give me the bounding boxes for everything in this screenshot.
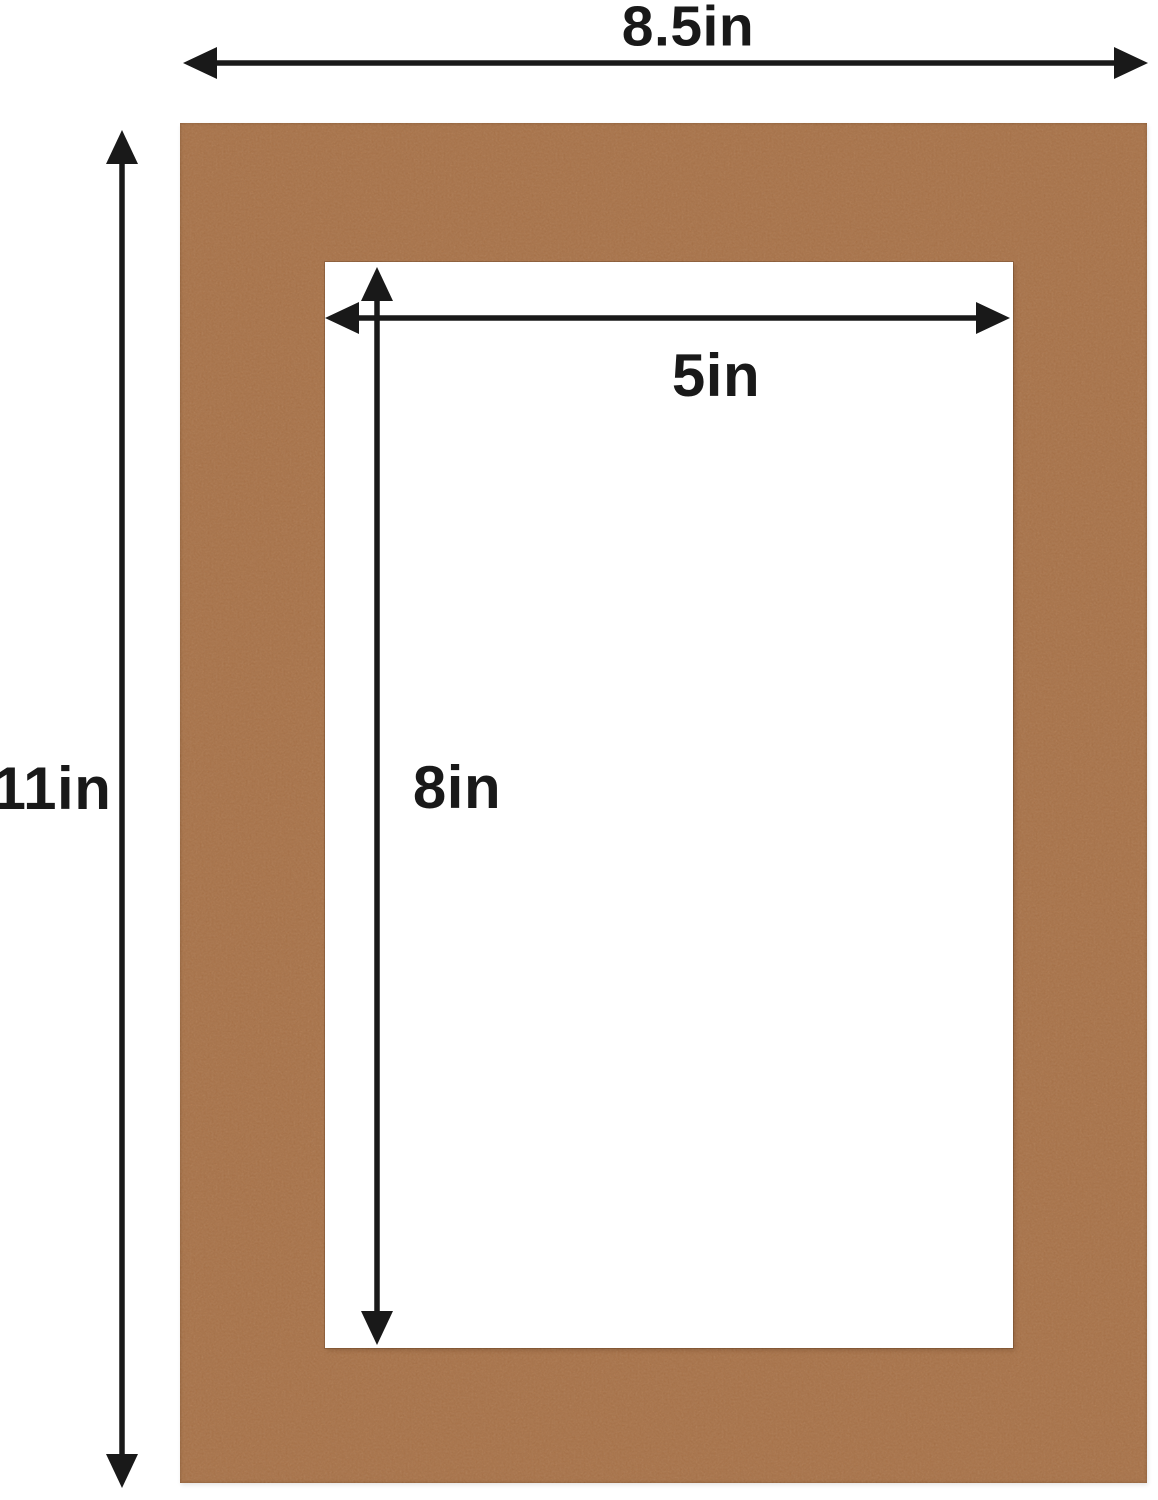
outer-width-label: 8.5in [622, 0, 754, 56]
mat-board [180, 123, 1147, 1483]
mat-board-dimension-diagram: 8.5in 11in 5in 8in [0, 0, 1158, 1500]
opening-width-label: 5in [672, 346, 760, 406]
outer-height-label: 11in [0, 759, 111, 819]
opening-height-label: 8in [413, 758, 501, 818]
